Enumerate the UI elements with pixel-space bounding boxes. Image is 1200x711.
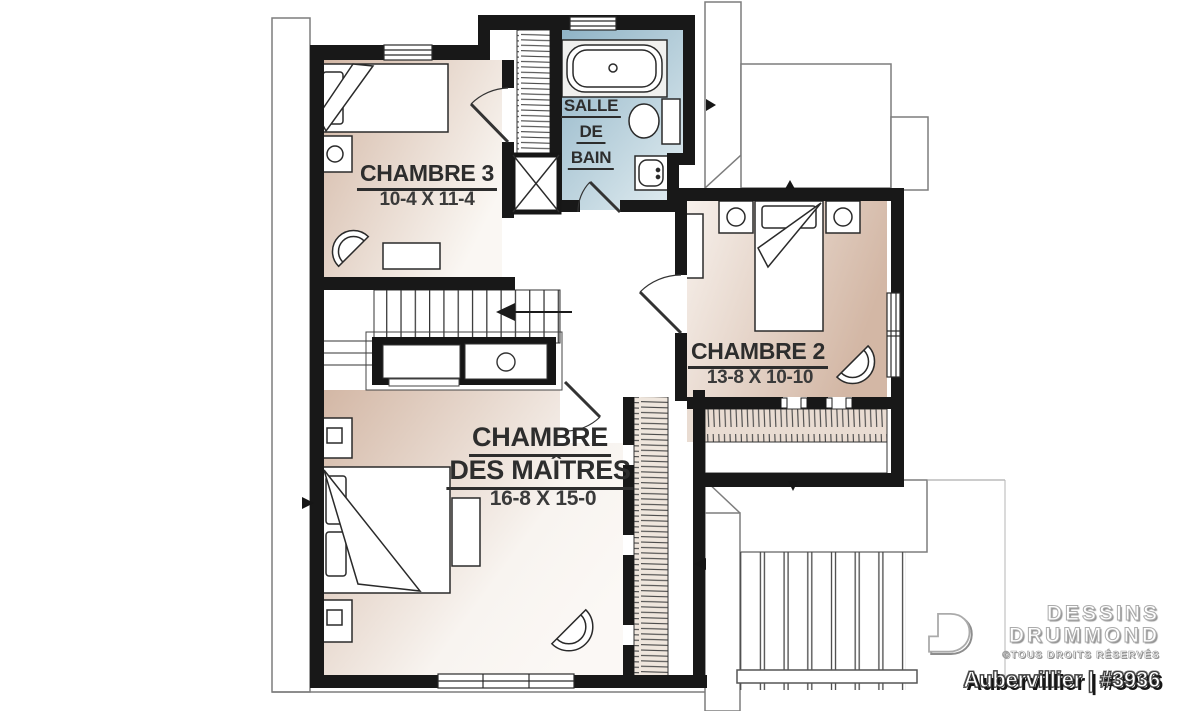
upper-roof-plane (741, 64, 891, 188)
wall-segment (693, 390, 705, 680)
door-opening (502, 88, 514, 142)
room-label-text: CHAMBRE 2 (688, 338, 828, 369)
brand-rights: ©TOUS DROITS RÉSERVÉS (1002, 651, 1160, 662)
chambre2-closet-hatch (705, 409, 887, 442)
room-label-chambre-2: CHAMBRE 2 (688, 338, 828, 369)
window-frame (887, 293, 900, 377)
plan-title: Aubervillier | #3936 (920, 667, 1160, 693)
room-dims-chambre-2: 13-8 X 10-10 (707, 367, 813, 389)
brand-logo: DESSINS DRUMMOND ©TOUS DROITS RÉSERVÉS (920, 603, 1160, 661)
upper-roof-step (891, 117, 928, 190)
wall-segment (683, 15, 695, 165)
window-symbol (384, 45, 432, 60)
window-frame (384, 45, 432, 60)
cabinet-compartment (383, 345, 460, 378)
nightstand-symbol (719, 201, 753, 233)
window-symbol (438, 674, 574, 688)
balcony-left-edge (705, 513, 740, 711)
brand-block: DESSINS DRUMMOND ©TOUS DROITS RÉSERVÉS A… (920, 603, 1160, 693)
wall-segment (700, 473, 904, 487)
room-label-text: SALLE (561, 96, 621, 118)
room-label-salle-de-bain-2: DE (576, 122, 605, 144)
bathtub-symbol (562, 40, 667, 97)
door-jamb-mark (801, 398, 807, 408)
floor-plan-page: CHAMBRE 3 10-4 X 11-4 SALLE DE BAIN CHAM… (0, 0, 1200, 711)
nightstand-symbol (320, 600, 352, 642)
nightstand-symbol (320, 418, 352, 458)
toilet-tank (662, 99, 680, 144)
brand-line-dessins: DESSINS (1002, 603, 1160, 625)
drummond-logo-d-icon (920, 603, 974, 659)
door-leaf (640, 292, 681, 333)
room-label-text: CHAMBRE (469, 422, 611, 457)
brand-wordmark: DESSINS DRUMMOND ©TOUS DROITS RÉSERVÉS (1002, 603, 1160, 661)
faucet-dot (656, 175, 659, 178)
closet-door-jamb-wall (623, 645, 634, 675)
door-jamb-mark (826, 398, 832, 408)
brand-line-drummond: DRUMMOND (1002, 625, 1160, 647)
cabinet-step (389, 379, 459, 386)
closet-door-jamb-wall (623, 397, 634, 445)
room-label-chambre-3: CHAMBRE 3 (357, 160, 497, 191)
pillow-symbol (326, 532, 346, 576)
upper-roof-ridge (705, 2, 741, 188)
chambre2-closet-shelf (705, 442, 887, 473)
wall-segment (687, 397, 783, 409)
room-label-salle-de-bain-1: SALLE (561, 96, 621, 118)
room-dims-chambre-3: 10-4 X 11-4 (380, 189, 475, 211)
left-roof-edge (272, 18, 310, 692)
door-arc (640, 275, 681, 292)
bathroom-sink-symbol (635, 156, 668, 190)
logo-d-shape (929, 614, 970, 652)
double-bed-symbol (755, 201, 823, 331)
lamp-symbol (834, 208, 852, 226)
balcony-beam (737, 670, 917, 683)
room-dims-maitres: 16-8 X 15-0 (490, 487, 596, 511)
room-label-text: DE (576, 122, 605, 144)
room-label-text: BAIN (568, 148, 614, 170)
lamp-symbol (327, 610, 342, 625)
wall-segment (620, 200, 679, 212)
window-symbol (887, 293, 900, 377)
room-label-text: CHAMBRE 3 (357, 160, 497, 191)
wall-segment (807, 397, 828, 409)
staircase (324, 290, 572, 390)
lamp-symbol (327, 428, 342, 443)
dresser-symbol (383, 243, 440, 269)
tub-drain (609, 64, 617, 72)
closet-door-jamb-wall (623, 555, 634, 625)
window-symbol (570, 17, 616, 30)
linen-closet-symbol (513, 155, 559, 212)
faucet-dot (656, 168, 659, 171)
nightstand-symbol (826, 201, 860, 233)
door-swing (640, 275, 681, 333)
wall-segment (310, 45, 324, 688)
single-bed-symbol (318, 64, 448, 132)
door-opening (675, 275, 687, 333)
door-jamb-mark (846, 398, 852, 408)
cabinet-sink-symbol (497, 353, 515, 371)
room-label-salle-de-bain-3: BAIN (568, 148, 614, 170)
room-label-maitres-1: CHAMBRE (469, 422, 611, 457)
wall-segment (852, 397, 891, 409)
door-jamb-mark (781, 398, 787, 408)
stair-treads (374, 290, 560, 343)
toilet-bowl (629, 104, 659, 138)
bench-symbol (452, 498, 480, 566)
wall-segment (667, 188, 904, 201)
door-leaf (565, 382, 600, 417)
master-closet-hatch (634, 397, 668, 675)
lamp-symbol (727, 208, 745, 226)
lamp-symbol (327, 146, 343, 162)
room-label-text: DES MAÎTRES (446, 455, 633, 490)
room-label-maitres-2: DES MAÎTRES (446, 455, 633, 490)
window-frame (570, 17, 616, 30)
linen-closet-hatch (517, 30, 550, 156)
sink-basin (639, 160, 663, 186)
wall-segment (310, 277, 515, 290)
queen-bed-symbol (322, 467, 450, 593)
